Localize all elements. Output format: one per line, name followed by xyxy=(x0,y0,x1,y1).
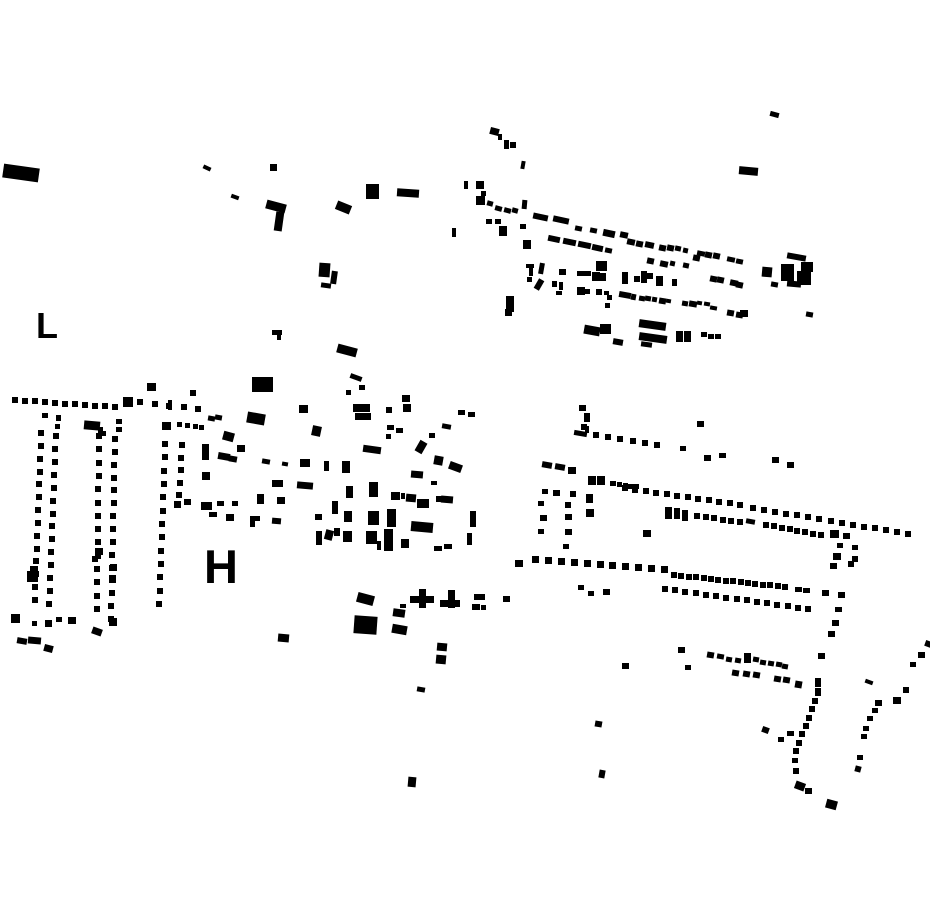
road-dot xyxy=(787,526,793,532)
building-footprint xyxy=(704,455,711,461)
road-dot xyxy=(12,397,18,403)
building-footprint xyxy=(843,533,850,539)
building-footprint xyxy=(857,755,863,760)
building-footprint xyxy=(415,440,428,454)
building-footprint xyxy=(792,758,798,763)
road-dot xyxy=(805,606,811,612)
road-dot xyxy=(111,487,117,493)
building-footprint xyxy=(369,482,378,497)
building-footprint xyxy=(522,200,528,209)
building-footprint xyxy=(391,492,400,500)
road-dot xyxy=(94,566,100,572)
building-footprint xyxy=(684,331,691,342)
building-footprint xyxy=(335,201,352,215)
building-footprint xyxy=(867,716,873,721)
building-footprint xyxy=(467,533,472,545)
building-footprint xyxy=(203,164,212,171)
building-footprint xyxy=(334,528,340,536)
road-dot xyxy=(783,511,789,517)
road-dot xyxy=(95,486,101,492)
building-footprint xyxy=(683,262,690,268)
road-dot xyxy=(95,553,101,559)
road-dot xyxy=(111,500,117,506)
road-dot xyxy=(713,593,719,599)
road-dot xyxy=(166,403,172,409)
road-dot xyxy=(745,580,751,586)
building-footprint xyxy=(833,553,841,560)
road-dot xyxy=(839,520,845,526)
building-footprint xyxy=(787,731,794,736)
building-footprint xyxy=(665,507,672,519)
building-footprint xyxy=(704,251,712,258)
road-dot xyxy=(701,575,707,581)
building-footprint xyxy=(402,395,410,402)
building-footprint xyxy=(353,615,377,635)
road-dot xyxy=(95,526,101,532)
building-footprint xyxy=(411,470,424,478)
road-dot xyxy=(793,748,799,754)
road-dot xyxy=(48,562,54,568)
road-dot xyxy=(94,579,100,585)
building-footprint xyxy=(865,679,874,685)
building-footprint xyxy=(368,511,379,525)
building-footprint xyxy=(658,244,666,251)
road-dot xyxy=(34,546,40,552)
building-footprint xyxy=(685,665,691,670)
road-dot xyxy=(779,525,785,531)
building-footprint xyxy=(520,224,526,229)
road-dot xyxy=(37,456,43,462)
road-dot xyxy=(156,601,162,607)
building-footprint xyxy=(542,461,553,469)
building-footprint xyxy=(727,256,736,263)
building-footprint xyxy=(2,164,40,183)
building-footprint xyxy=(417,686,426,692)
road-dot xyxy=(744,597,750,603)
building-footprint xyxy=(278,634,290,643)
road-dot xyxy=(47,588,53,594)
building-footprint xyxy=(499,226,507,236)
road-dot xyxy=(693,590,699,596)
building-footprint xyxy=(202,472,210,480)
building-footprint xyxy=(410,596,434,603)
road-dot xyxy=(850,522,856,528)
road-dot xyxy=(812,698,818,704)
building-footprint xyxy=(602,229,615,238)
road-dot xyxy=(35,520,41,526)
building-footprint xyxy=(610,481,616,486)
building-footprint xyxy=(647,273,653,279)
road-dot xyxy=(678,573,684,579)
building-footprint xyxy=(753,671,761,678)
building-footprint xyxy=(659,260,668,268)
building-footprint xyxy=(727,309,735,316)
building-footprint xyxy=(417,499,429,508)
road-dot xyxy=(767,582,773,588)
building-footprint xyxy=(726,657,733,663)
building-footprint xyxy=(468,412,475,417)
road-dot xyxy=(22,398,28,404)
road-dot xyxy=(95,513,101,519)
building-footprint xyxy=(552,281,557,287)
building-footprint xyxy=(622,663,629,669)
building-footprint xyxy=(442,423,452,429)
building-footprint xyxy=(393,608,406,618)
building-footprint xyxy=(641,341,653,347)
building-footprint xyxy=(872,708,878,713)
road-dot xyxy=(794,528,800,534)
road-dot xyxy=(632,487,638,493)
building-footprint xyxy=(355,413,371,420)
building-footprint xyxy=(736,258,744,264)
road-dot xyxy=(532,556,539,563)
building-footprint xyxy=(177,422,182,427)
road-dot xyxy=(109,552,115,558)
road-dot xyxy=(635,564,642,571)
building-footprint xyxy=(116,427,122,432)
road-dot xyxy=(671,572,677,578)
road-dot xyxy=(49,523,55,529)
building-footprint xyxy=(498,134,502,140)
building-footprint xyxy=(830,563,837,569)
building-footprint xyxy=(563,238,577,247)
road-dot xyxy=(703,592,709,598)
road-dot xyxy=(727,500,733,506)
building-footprint xyxy=(837,543,843,548)
road-dot xyxy=(95,500,101,506)
building-footprint xyxy=(717,653,725,659)
building-footprint xyxy=(470,511,476,527)
building-footprint xyxy=(527,277,532,282)
building-footprint xyxy=(682,301,689,307)
road-dot xyxy=(161,481,167,487)
building-footprint xyxy=(257,494,264,504)
road-dot xyxy=(693,574,699,580)
building-footprint xyxy=(504,140,509,149)
building-footprint xyxy=(793,768,799,774)
building-footprint xyxy=(697,421,704,427)
road-dot xyxy=(805,514,811,520)
road-dot xyxy=(760,582,766,588)
building-footprint xyxy=(794,680,802,688)
building-footprint xyxy=(246,412,266,426)
building-footprint xyxy=(743,670,751,677)
road-dot xyxy=(708,576,714,582)
building-footprint xyxy=(332,501,338,514)
building-footprint xyxy=(739,166,759,176)
building-footprint xyxy=(666,244,674,251)
road-dot xyxy=(53,433,59,439)
building-footprint xyxy=(584,271,591,276)
road-dot xyxy=(806,715,812,721)
building-footprint xyxy=(523,240,531,249)
building-footprint xyxy=(534,278,545,291)
road-dot xyxy=(96,473,102,479)
building-footprint xyxy=(17,637,28,645)
building-footprint xyxy=(613,338,624,346)
road-dot xyxy=(737,519,743,525)
building-footprint xyxy=(476,181,484,189)
building-footprint xyxy=(441,495,454,503)
building-footprint xyxy=(559,269,566,275)
road-dot xyxy=(905,531,911,537)
building-footprint xyxy=(631,294,637,301)
building-footprint xyxy=(444,544,452,549)
road-dot xyxy=(648,565,655,572)
building-footprint xyxy=(701,332,707,337)
building-footprint xyxy=(598,770,605,779)
building-footprint xyxy=(622,272,628,284)
building-footprint xyxy=(533,213,549,222)
building-footprint xyxy=(590,227,598,233)
building-footprint xyxy=(440,600,460,607)
building-footprint xyxy=(774,675,782,682)
building-footprint xyxy=(644,241,654,249)
road-dot xyxy=(883,527,889,533)
building-footprint xyxy=(359,385,365,390)
road-dot xyxy=(715,577,721,583)
road-dot xyxy=(622,563,629,570)
road-dot xyxy=(152,401,158,407)
building-footprint xyxy=(761,726,770,734)
building-footprint xyxy=(744,653,751,663)
building-footprint xyxy=(401,539,409,548)
building-footprint xyxy=(670,261,676,267)
road-dot xyxy=(52,446,58,452)
road-dot xyxy=(94,606,100,612)
building-footprint xyxy=(548,235,561,243)
building-footprint xyxy=(656,276,663,286)
building-footprint xyxy=(321,282,332,288)
building-footprint xyxy=(675,245,682,251)
road-dot xyxy=(110,513,116,519)
road-dot xyxy=(62,401,68,407)
road-dot xyxy=(894,529,900,535)
building-footprint xyxy=(324,529,334,541)
road-dot xyxy=(761,507,767,513)
road-dot xyxy=(38,430,44,436)
road-dot xyxy=(682,589,688,595)
road-dot xyxy=(96,446,102,452)
building-footprint xyxy=(592,272,600,281)
building-footprint xyxy=(803,588,810,593)
road-dot xyxy=(109,590,115,596)
building-footprint xyxy=(595,720,603,727)
building-footprint xyxy=(645,296,652,302)
building-footprint xyxy=(538,501,544,506)
building-footprint xyxy=(568,467,576,474)
road-dot xyxy=(178,467,184,473)
building-footprint xyxy=(815,688,821,696)
building-footprint xyxy=(452,228,456,237)
building-footprint xyxy=(458,410,465,415)
building-footprint xyxy=(863,726,869,731)
building-footprint xyxy=(639,319,667,331)
road-dot xyxy=(36,494,42,500)
building-footprint xyxy=(708,334,714,339)
building-footprint xyxy=(229,455,238,462)
building-footprint xyxy=(147,383,156,391)
road-dot xyxy=(617,436,623,442)
road-dot xyxy=(723,578,729,584)
road-dot xyxy=(764,600,770,606)
building-footprint xyxy=(232,501,238,506)
building-footprint xyxy=(336,344,358,358)
building-footprint xyxy=(330,271,338,285)
building-footprint xyxy=(252,377,273,392)
road-dot xyxy=(799,731,805,737)
road-dot xyxy=(161,468,167,474)
building-footprint xyxy=(515,560,523,567)
building-footprint xyxy=(643,530,651,537)
road-dot xyxy=(177,480,183,486)
road-dot xyxy=(82,402,88,408)
road-dot xyxy=(102,403,108,409)
building-footprint xyxy=(682,510,688,521)
road-dot xyxy=(774,602,780,608)
road-dot xyxy=(703,514,709,520)
road-dot xyxy=(730,578,736,584)
building-footprint xyxy=(377,541,381,550)
building-footprint xyxy=(400,604,406,608)
building-footprint xyxy=(707,651,715,658)
road-dot xyxy=(162,454,168,460)
building-footprint xyxy=(918,652,925,658)
building-footprint xyxy=(411,521,434,533)
road-dot xyxy=(109,577,115,583)
building-footprint xyxy=(406,494,417,503)
building-footprint xyxy=(787,280,801,287)
building-footprint xyxy=(437,643,448,652)
building-footprint xyxy=(712,252,720,259)
building-footprint xyxy=(520,161,525,170)
building-footprint xyxy=(597,476,605,485)
building-footprint xyxy=(270,164,277,171)
road-dot xyxy=(695,496,701,502)
road-dot xyxy=(72,401,78,407)
building-footprint xyxy=(193,424,198,429)
building-footprint xyxy=(538,529,544,534)
building-footprint xyxy=(565,529,572,535)
building-footprint xyxy=(805,788,812,794)
road-dot xyxy=(52,400,58,406)
road-dot xyxy=(110,539,116,545)
road-dot xyxy=(711,515,717,521)
building-footprint xyxy=(683,248,689,254)
building-footprint xyxy=(555,463,566,471)
road-dot xyxy=(584,560,591,567)
building-footprint xyxy=(481,191,486,196)
building-footprint xyxy=(605,303,610,308)
building-footprint xyxy=(433,455,443,465)
building-footprint xyxy=(806,311,814,317)
building-footprint xyxy=(588,476,596,485)
road-dot xyxy=(597,561,604,568)
road-dot xyxy=(49,536,55,542)
road-dot xyxy=(802,529,808,535)
building-footprint xyxy=(674,508,680,519)
building-footprint xyxy=(387,425,394,430)
building-footprint xyxy=(386,407,392,413)
building-footprint xyxy=(185,423,190,428)
building-footprint xyxy=(28,636,42,644)
road-dot xyxy=(796,740,802,746)
building-footprint xyxy=(299,405,308,413)
building-footprint xyxy=(556,291,562,295)
building-footprint xyxy=(570,491,576,497)
building-footprint xyxy=(583,325,600,337)
building-footprint xyxy=(408,777,417,788)
building-footprint xyxy=(903,687,909,693)
building-footprint xyxy=(311,425,322,437)
road-dot xyxy=(33,558,39,564)
road-dot xyxy=(558,558,565,565)
road-dot xyxy=(728,518,734,524)
road-dot xyxy=(803,723,809,729)
building-footprint xyxy=(735,281,743,288)
building-footprint xyxy=(692,254,700,261)
road-dot xyxy=(794,512,800,518)
building-footprint xyxy=(924,640,930,648)
building-footprint xyxy=(55,424,60,429)
building-footprint xyxy=(209,512,217,517)
road-dot xyxy=(750,505,756,511)
road-dot xyxy=(763,522,769,528)
road-dot xyxy=(46,601,52,607)
building-footprint xyxy=(436,655,447,665)
figure-ground-map: L H xyxy=(0,0,930,924)
road-dot xyxy=(160,508,166,514)
building-footprint xyxy=(596,261,607,271)
road-dot xyxy=(605,434,611,440)
building-footprint xyxy=(861,734,867,739)
road-dot xyxy=(782,584,788,590)
road-dot xyxy=(48,549,54,555)
building-footprint xyxy=(783,676,791,683)
building-footprint xyxy=(619,291,632,299)
road-dot xyxy=(157,588,163,594)
building-footprint xyxy=(32,621,37,626)
building-footprint xyxy=(581,424,587,430)
building-footprint xyxy=(634,276,640,282)
building-footprint xyxy=(262,458,271,464)
road-dot xyxy=(96,433,102,439)
road-dot xyxy=(630,438,636,444)
road-dot xyxy=(176,492,182,498)
road-dot xyxy=(42,399,48,405)
building-footprint xyxy=(672,279,677,286)
building-footprint xyxy=(762,267,773,278)
building-footprint xyxy=(626,238,635,246)
road-dot xyxy=(111,462,117,468)
building-footprint xyxy=(822,590,829,596)
building-footprint xyxy=(297,481,314,489)
building-footprint xyxy=(315,514,322,520)
building-footprint xyxy=(346,486,353,498)
road-dot xyxy=(36,481,42,487)
building-footprint xyxy=(396,428,403,433)
building-footprint xyxy=(282,462,289,467)
road-dot xyxy=(158,561,164,567)
building-footprint xyxy=(746,518,756,524)
building-footprint xyxy=(770,111,780,118)
road-dot xyxy=(95,539,101,545)
road-dot xyxy=(96,460,102,466)
building-footprint xyxy=(429,433,435,438)
building-footprint xyxy=(495,219,501,224)
building-footprint xyxy=(184,499,191,505)
road-dot xyxy=(157,574,163,580)
